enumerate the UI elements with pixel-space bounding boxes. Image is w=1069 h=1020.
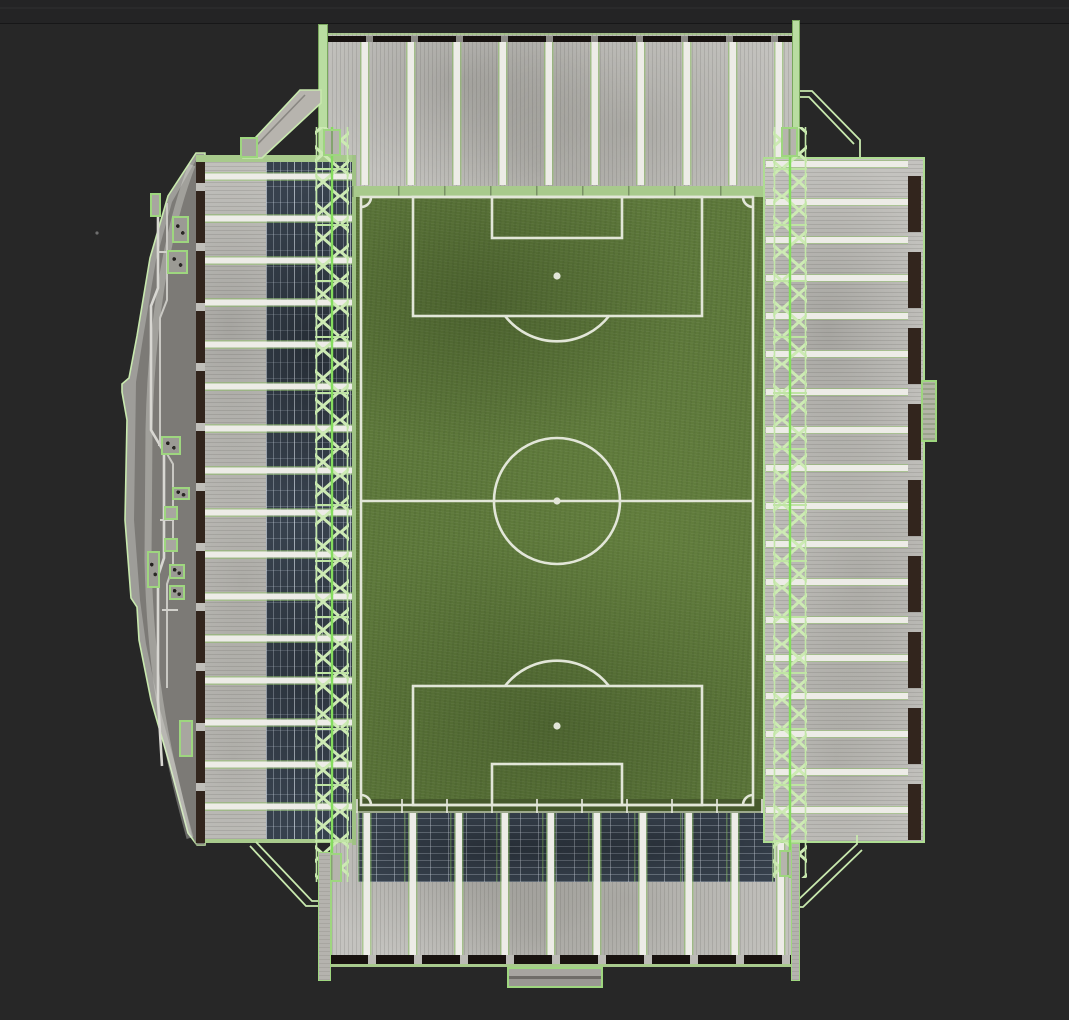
equipment-box	[147, 551, 160, 588]
south-stand-right-pillar	[791, 843, 800, 981]
equipment-box	[161, 436, 181, 455]
ramp-base-box	[240, 137, 258, 158]
southwest-stair-wireframe	[250, 842, 322, 906]
equipment-box	[169, 564, 185, 579]
viewport-3d-stadium[interactable]	[0, 0, 1069, 1020]
equipment-box	[164, 538, 178, 552]
truss-wireframe-layer	[0, 0, 1069, 1020]
equipment-box	[172, 487, 190, 500]
equipment-box	[179, 720, 193, 757]
west-truss-cap	[323, 129, 341, 156]
east-truss-cap	[781, 127, 798, 157]
equipment-box	[172, 216, 189, 243]
equipment-box	[167, 250, 188, 274]
equipment-box	[169, 585, 185, 600]
equipment-box	[150, 193, 161, 217]
west-truss	[315, 127, 349, 882]
equipment-box	[164, 506, 178, 520]
east-truss	[773, 127, 807, 878]
players-tunnel	[507, 967, 603, 988]
northeast-access-wireframe	[800, 91, 860, 157]
south-stand-left-pillar	[318, 852, 331, 981]
